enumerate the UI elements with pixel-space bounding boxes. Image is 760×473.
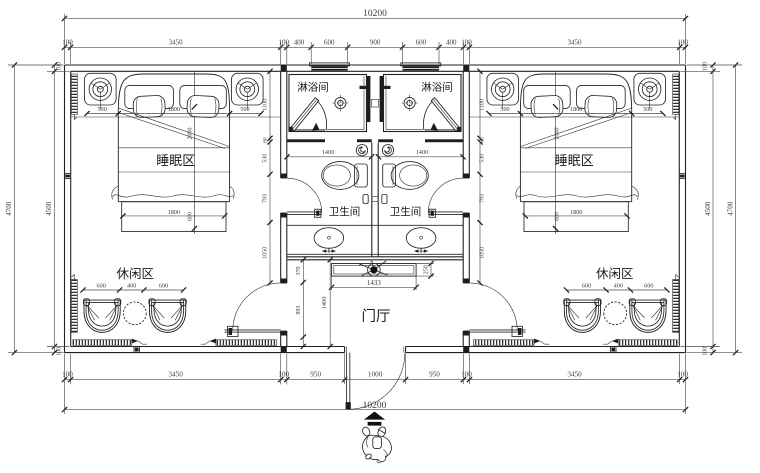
svg-text:睡眠区: 睡眠区 [156, 153, 195, 168]
svg-text:2000: 2000 [555, 128, 561, 140]
svg-text:3450: 3450 [168, 371, 183, 379]
svg-text:3450: 3450 [169, 39, 184, 47]
svg-text:600: 600 [644, 283, 653, 290]
svg-text:500: 500 [98, 106, 107, 113]
svg-text:100: 100 [57, 347, 63, 356]
svg-text:530: 530 [263, 154, 269, 163]
svg-text:893: 893 [296, 306, 302, 315]
svg-text:600: 600 [582, 283, 591, 290]
svg-text:休闲区: 休闲区 [117, 267, 155, 281]
svg-text:400: 400 [446, 39, 457, 47]
svg-text:1000: 1000 [368, 371, 383, 379]
svg-text:1100: 1100 [479, 99, 485, 111]
svg-text:100: 100 [278, 39, 289, 47]
svg-text:1100: 1100 [263, 99, 269, 111]
svg-text:100: 100 [677, 39, 688, 47]
svg-text:400: 400 [127, 283, 136, 290]
svg-text:100: 100 [461, 39, 472, 47]
svg-text:530: 530 [479, 154, 485, 163]
svg-text:370: 370 [296, 267, 302, 276]
svg-text:600: 600 [555, 212, 561, 221]
svg-text:1800: 1800 [168, 106, 180, 113]
svg-text:950: 950 [310, 371, 321, 379]
svg-text:100: 100 [62, 371, 73, 379]
svg-text:4700: 4700 [5, 201, 13, 216]
svg-text:600: 600 [324, 39, 335, 47]
svg-text:400: 400 [294, 39, 305, 47]
svg-text:600: 600 [416, 39, 427, 47]
svg-text:100: 100 [677, 371, 688, 379]
svg-text:4700: 4700 [726, 201, 734, 216]
svg-text:卫生间: 卫生间 [329, 205, 361, 218]
svg-text:100: 100 [278, 371, 289, 379]
svg-text:100: 100 [57, 62, 63, 71]
svg-text:500: 500 [643, 106, 652, 113]
svg-text:休闲区: 休闲区 [596, 267, 634, 281]
svg-text:4500: 4500 [704, 201, 712, 216]
svg-text:1400: 1400 [322, 149, 334, 156]
svg-text:睡眠区: 睡眠区 [555, 153, 594, 168]
svg-text:3450: 3450 [567, 371, 582, 379]
svg-text:600: 600 [159, 283, 168, 290]
svg-text:900: 900 [370, 39, 381, 47]
svg-text:60: 60 [479, 137, 485, 143]
svg-text:100: 100 [703, 347, 709, 356]
svg-text:淋浴间: 淋浴间 [297, 81, 329, 94]
svg-text:950: 950 [429, 371, 440, 379]
svg-text:793: 793 [479, 194, 485, 203]
svg-text:卫生间: 卫生间 [390, 205, 422, 218]
svg-text:10200: 10200 [363, 401, 387, 411]
svg-text:1400: 1400 [416, 149, 428, 156]
svg-text:100: 100 [703, 62, 709, 71]
svg-text:3450: 3450 [568, 39, 583, 47]
svg-text:100: 100 [461, 371, 472, 379]
svg-text:10200: 10200 [363, 9, 387, 19]
svg-text:门厅: 门厅 [362, 308, 391, 325]
svg-text:1050: 1050 [479, 247, 485, 259]
svg-text:793: 793 [263, 194, 269, 203]
svg-text:1400: 1400 [321, 297, 328, 310]
svg-text:600: 600 [97, 283, 106, 290]
svg-text:250: 250 [423, 265, 429, 274]
svg-text:1800: 1800 [570, 209, 582, 216]
svg-text:1800: 1800 [570, 106, 582, 113]
svg-text:1800: 1800 [168, 209, 180, 216]
svg-text:600: 600 [187, 212, 193, 221]
svg-text:500: 500 [240, 106, 249, 113]
svg-text:100: 100 [62, 39, 73, 47]
svg-text:4500: 4500 [45, 201, 53, 216]
svg-text:淋浴间: 淋浴间 [421, 81, 453, 94]
svg-text:500: 500 [500, 106, 509, 113]
svg-text:1433: 1433 [367, 279, 382, 287]
svg-text:60: 60 [263, 137, 269, 143]
svg-text:400: 400 [614, 283, 623, 290]
svg-text:1050: 1050 [263, 247, 269, 259]
svg-text:2000: 2000 [187, 128, 193, 140]
